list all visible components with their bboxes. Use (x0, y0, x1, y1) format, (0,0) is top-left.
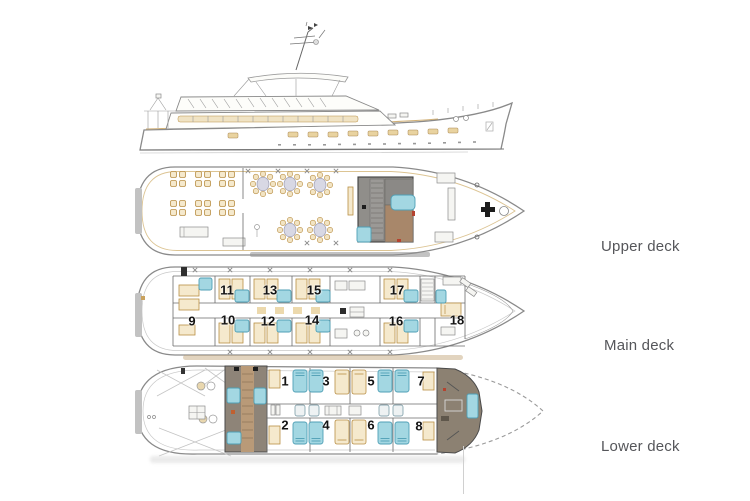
cabin-number-18: 18 (450, 313, 464, 328)
cabin-number-4: 4 (322, 418, 329, 433)
bow-crew-block (437, 368, 482, 453)
cabin-number-14: 14 (305, 313, 319, 328)
wheelhouse-brown-area (385, 205, 413, 242)
profile-mast (290, 22, 325, 70)
deck-plan-canvas: Upper deck (0, 0, 750, 501)
main-deck-plan (135, 263, 527, 361)
deck-shadow (250, 252, 430, 257)
stern-platform (135, 390, 142, 434)
cabin-number-6: 6 (367, 418, 374, 433)
cabin-number-9: 9 (188, 314, 195, 329)
crew-block (225, 366, 267, 452)
bow-reference-line (463, 446, 464, 494)
deck-label-main: Main deck (604, 337, 674, 354)
foredeck-bench (437, 173, 455, 183)
cabin-number-7: 7 (417, 374, 424, 389)
cabin-number-13: 13 (263, 283, 277, 298)
cabin-number-5: 5 (367, 374, 374, 389)
cabin-number-10: 10 (221, 313, 235, 328)
cabin-number-12: 12 (261, 314, 275, 329)
ship-side-profile (138, 18, 528, 160)
lower-deck-shadow (150, 456, 465, 463)
wheelhouse-structure (357, 177, 415, 242)
upper-deck-plan (135, 163, 527, 261)
wheelhouse-settee (391, 195, 415, 210)
cabin-number-1: 1 (281, 374, 288, 389)
cabin-number-11: 11 (220, 283, 234, 298)
cabin-number-3: 3 (322, 374, 329, 389)
cabin-number-15: 15 (307, 283, 321, 298)
upper-hull (137, 167, 524, 255)
main-deck-shadow (183, 355, 463, 360)
lower-deck-plan (135, 358, 549, 464)
profile-sun-deck (234, 73, 348, 96)
foredeck-bench (435, 232, 453, 242)
cabin-number-2: 2 (281, 418, 288, 433)
stern-platform (135, 293, 142, 337)
deck-label-upper: Upper deck (601, 238, 680, 255)
stern-platform (135, 188, 142, 234)
cabin-number-8: 8 (415, 419, 422, 434)
deck-label-lower: Lower deck (601, 438, 680, 455)
cabin-number-17: 17 (390, 283, 404, 298)
stair-lobby (421, 279, 434, 301)
cabin-number-16: 16 (389, 314, 403, 329)
